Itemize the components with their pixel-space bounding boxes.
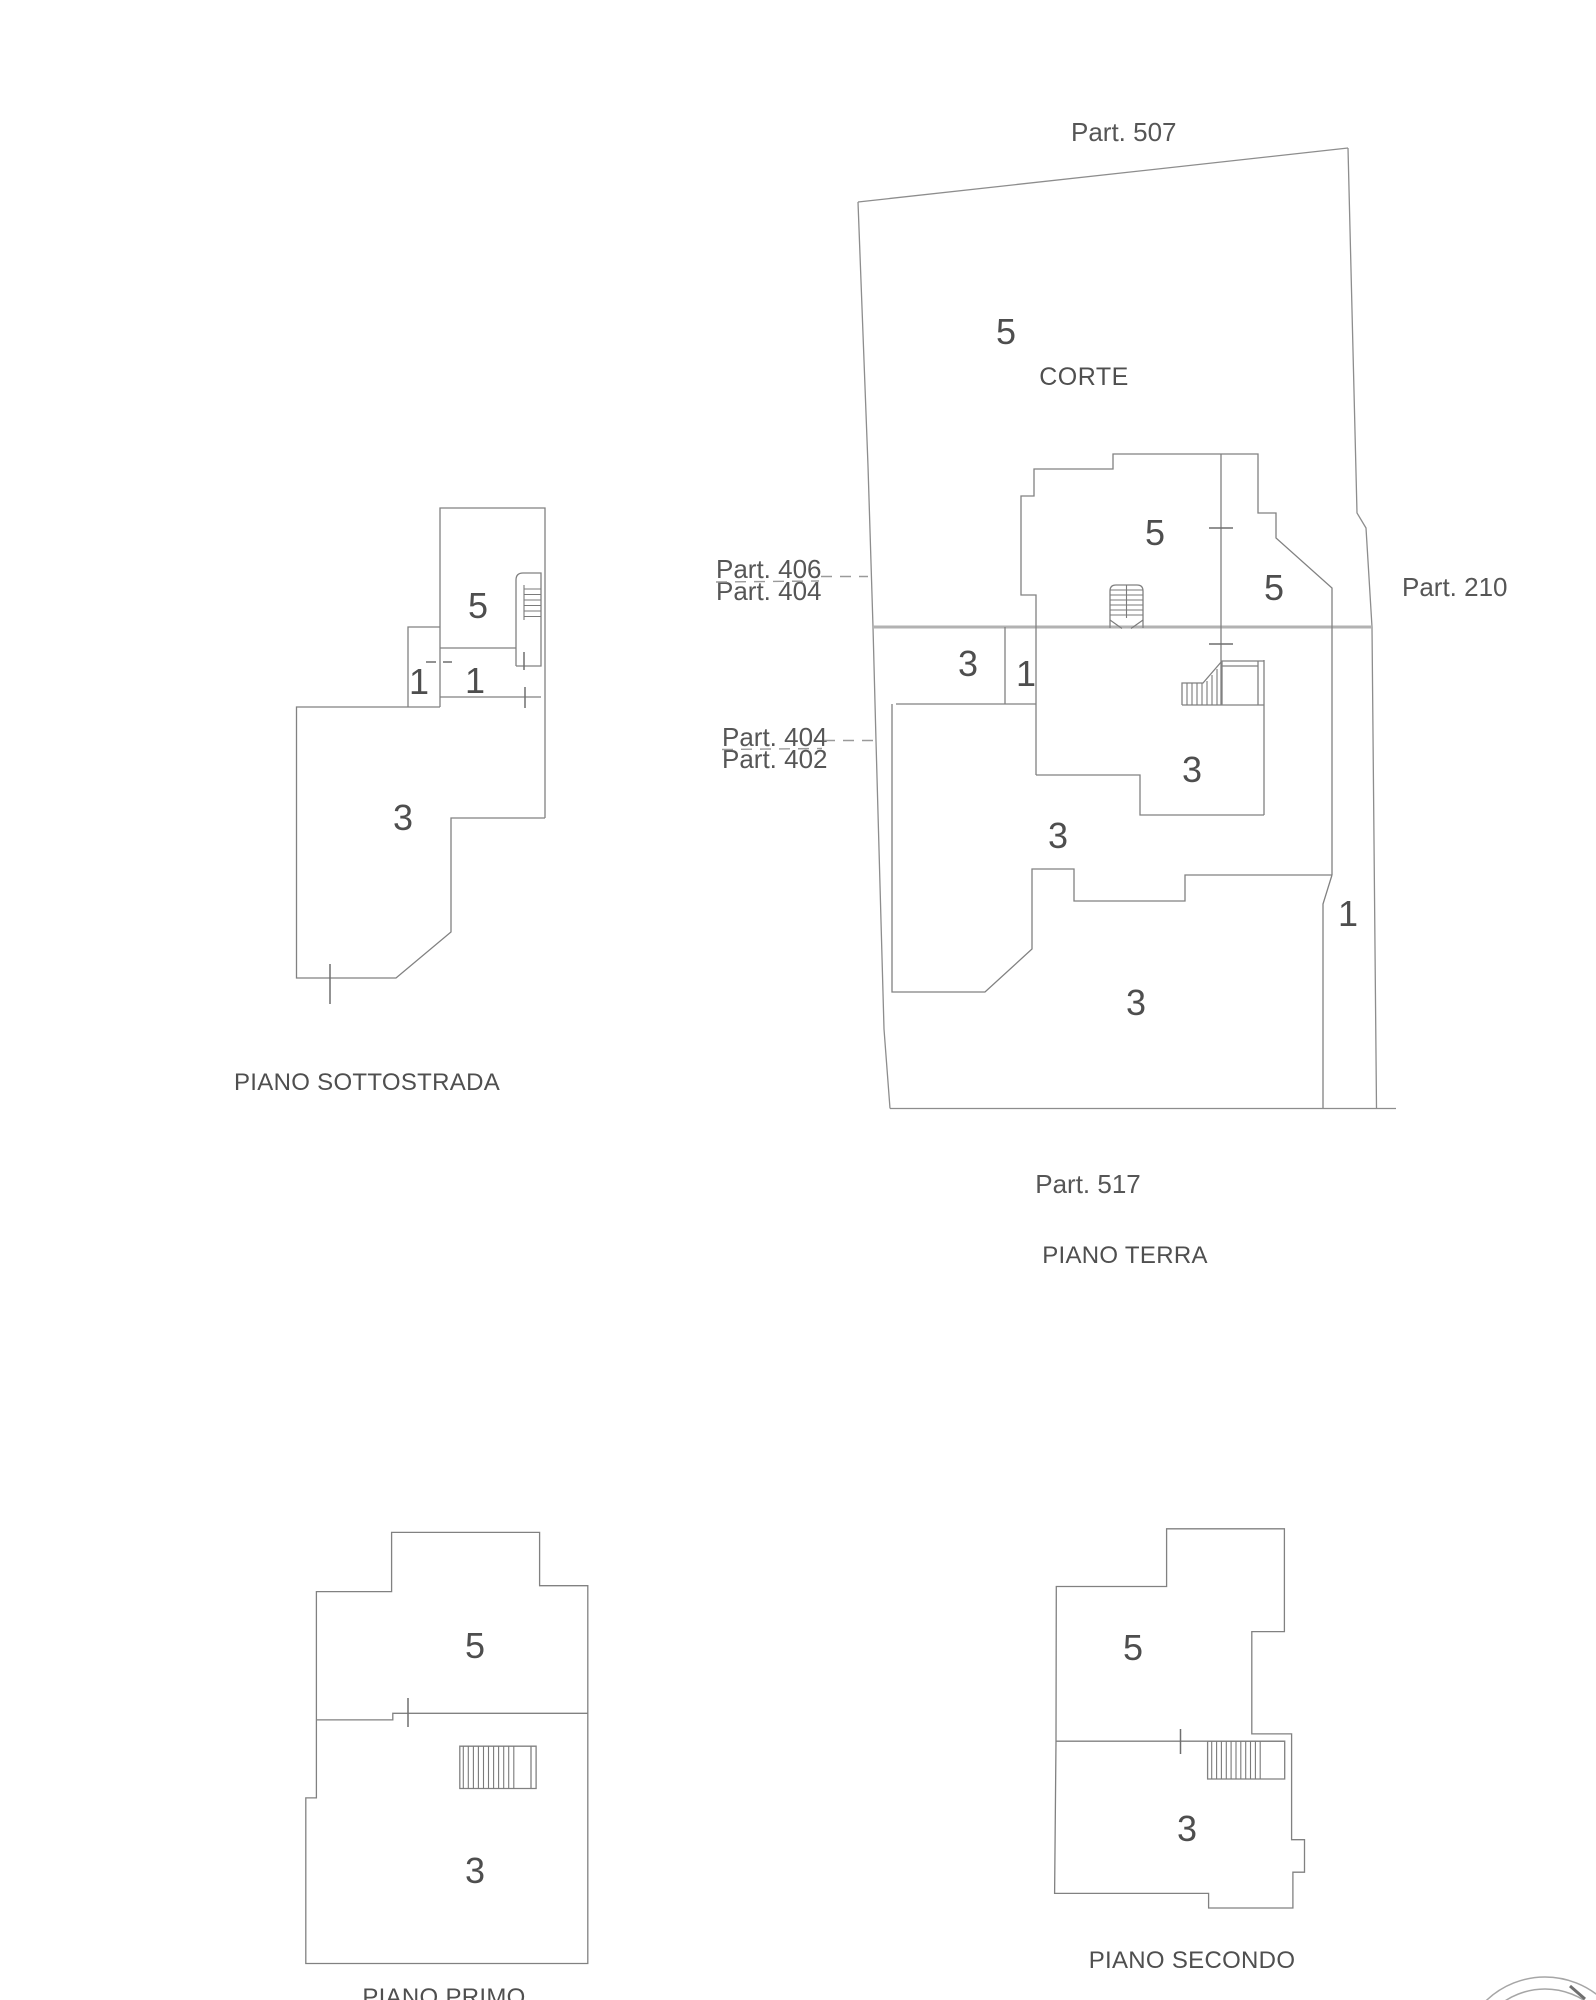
svg-text:Part. 404: Part. 404 <box>716 576 822 606</box>
svg-text:5: 5 <box>465 1625 485 1666</box>
svg-text:1: 1 <box>1016 653 1036 694</box>
svg-text:1: 1 <box>1338 893 1358 934</box>
svg-text:3: 3 <box>465 1850 485 1891</box>
svg-text:3: 3 <box>958 643 978 684</box>
svg-text:3: 3 <box>393 797 413 838</box>
svg-text:PIANO TERRA: PIANO TERRA <box>1042 1242 1208 1269</box>
svg-text:3: 3 <box>1182 749 1202 790</box>
svg-text:CORTE: CORTE <box>1039 363 1129 391</box>
svg-text:5: 5 <box>996 311 1016 352</box>
svg-text:Part. 517: Part. 517 <box>1035 1169 1141 1199</box>
svg-text:1: 1 <box>465 660 485 701</box>
svg-text:Part. 210: Part. 210 <box>1402 572 1508 602</box>
svg-text:5: 5 <box>1264 567 1284 608</box>
svg-text:PIANO SOTTOSTRADA: PIANO SOTTOSTRADA <box>234 1069 500 1096</box>
svg-text:PIANO SECONDO: PIANO SECONDO <box>1089 1947 1296 1974</box>
svg-text:5: 5 <box>1123 1627 1143 1668</box>
svg-text:1: 1 <box>409 661 429 702</box>
svg-text:3: 3 <box>1048 815 1068 856</box>
svg-text:Part. 507: Part. 507 <box>1071 117 1177 147</box>
svg-text:3: 3 <box>1177 1808 1197 1849</box>
svg-text:3: 3 <box>1126 982 1146 1023</box>
svg-text:5: 5 <box>468 585 488 626</box>
svg-text:PIANO PRIMO: PIANO PRIMO <box>362 1984 525 2000</box>
svg-text:Part. 402: Part. 402 <box>722 744 828 774</box>
svg-text:5: 5 <box>1145 512 1165 553</box>
